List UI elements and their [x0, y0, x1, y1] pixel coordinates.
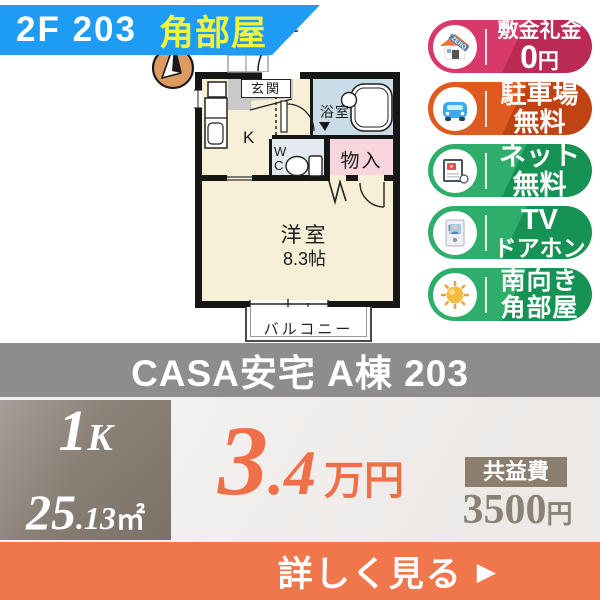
common-fee-value: 3500円: [450, 486, 585, 534]
label-bathroom: 浴室: [320, 102, 350, 122]
car-icon: [433, 87, 477, 131]
label-entrance: 玄関: [241, 79, 291, 98]
badge-deposit-text: 敷金礼金 0円: [487, 20, 592, 73]
house-zero-icon: ZERO: [433, 25, 477, 69]
label-room-size: 8.3帖: [202, 245, 407, 271]
property-title: CASA安宅 A棟 203: [131, 343, 469, 397]
listing-card: 玄関 K 浴室 WC 物入 洋室 8.3帖 バルコニー N 2F 203 角部屋…: [0, 0, 600, 600]
common-fee-label: 共益費: [465, 457, 567, 487]
unit-number: 2F 203: [16, 10, 137, 50]
property-title-bar: CASA安宅 A棟 203: [0, 343, 600, 397]
badge-internet-text: ネット 無料: [487, 142, 592, 199]
box-sheen: [0, 400, 171, 540]
floorplan: [195, 72, 400, 308]
doorphone-icon: [433, 211, 477, 255]
see-details-label: 詳しく見る: [278, 546, 463, 597]
arrow-right-icon: ▶: [477, 557, 496, 587]
layout-area-box: 1K 25.13㎡: [0, 400, 171, 540]
badge-tv-doorphone: TV ドアホン: [428, 206, 592, 259]
rent-price: 3.4万円: [218, 402, 404, 520]
label-storage: 物入: [330, 146, 393, 173]
see-details-button[interactable]: 詳しく見る ▶: [0, 542, 600, 600]
unit-banner: 2F 203 角部屋: [0, 5, 320, 55]
label-kitchen: K: [243, 128, 254, 148]
badge-parking-text: 駐車場 無料: [487, 81, 592, 136]
tablet-icon: [433, 149, 477, 193]
label-balcony: バルコニー: [245, 318, 372, 339]
badge-deposit-zero: ZERO 敷金礼金 0円: [428, 20, 592, 73]
corner-room-tag: 角部屋: [159, 5, 267, 56]
badge-south-corner: 南向き 角部屋: [428, 268, 592, 321]
label-toilet: WC: [274, 145, 286, 173]
badge-parking-free: 駐車場 無料: [428, 82, 592, 135]
sun-icon: [433, 273, 477, 317]
badge-south-text: 南向き 角部屋: [487, 268, 592, 321]
badge-internet-free: ネット 無料: [428, 144, 592, 197]
badge-doorphone-text: TV ドアホン: [487, 205, 592, 260]
